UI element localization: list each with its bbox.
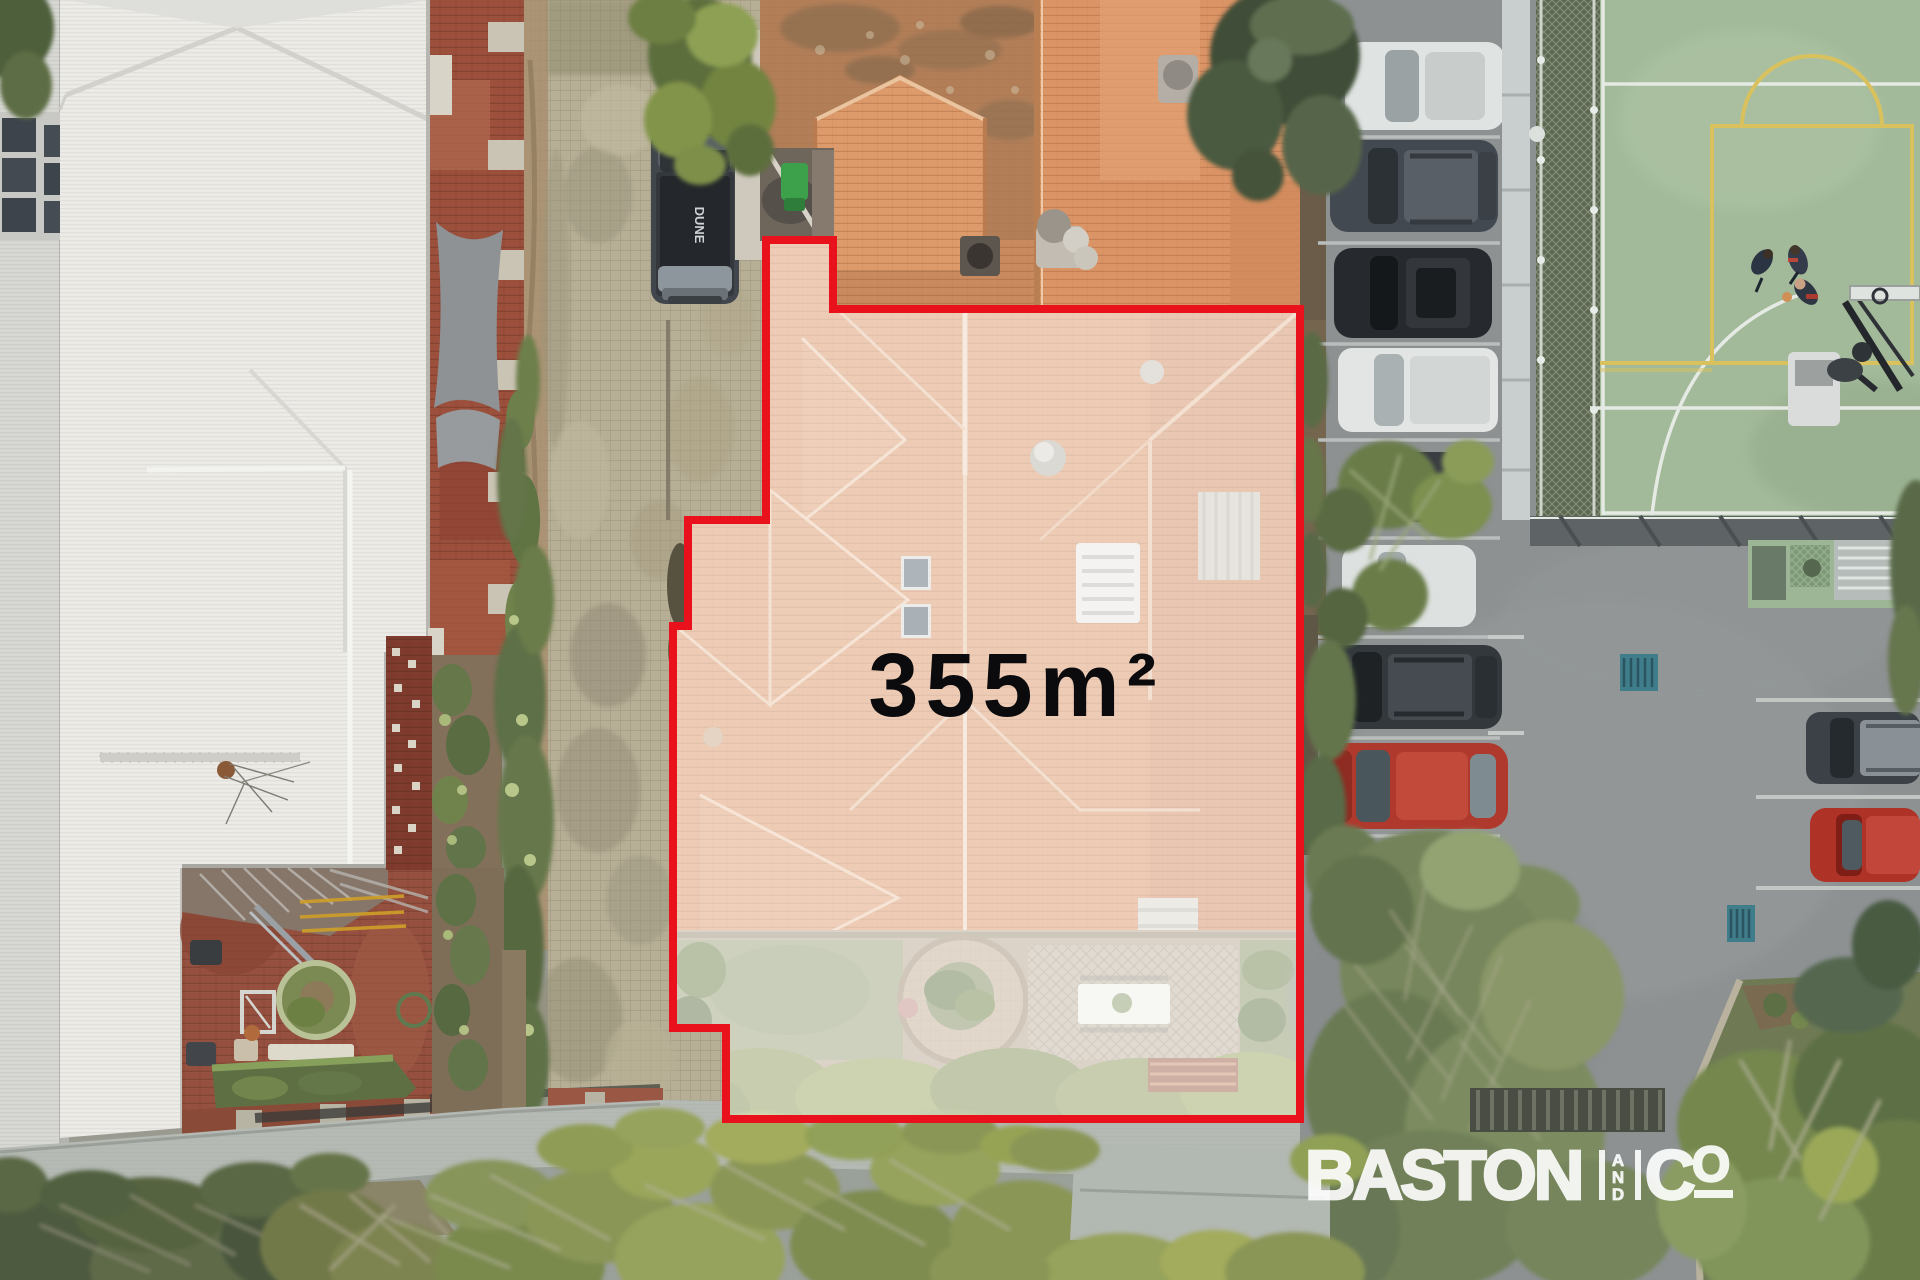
svg-text:355m²: 355m²: [868, 636, 1163, 736]
svg-text:D: D: [1612, 1185, 1624, 1204]
svg-text:BASTON: BASTON: [1305, 1136, 1581, 1214]
svg-text:O: O: [1692, 1138, 1730, 1192]
svg-text:C: C: [1645, 1136, 1696, 1214]
svg-text:DUNE: DUNE: [692, 207, 707, 244]
